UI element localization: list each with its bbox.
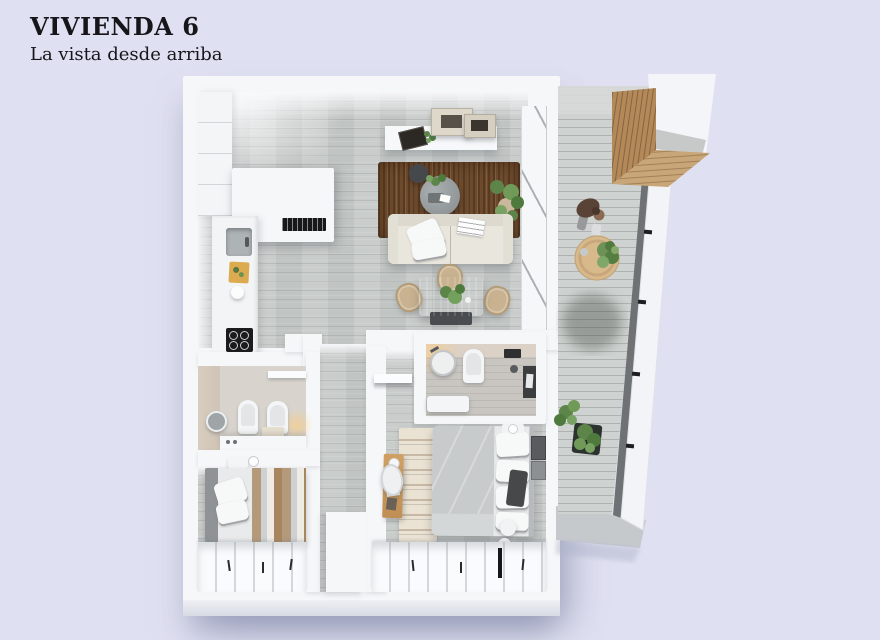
tree-shadow [562,294,622,350]
balcony-table-set [575,236,619,280]
balcony-render [0,0,880,640]
cup [580,248,588,256]
watering-can [591,223,602,235]
floor-plan-render: VIVIENDA 6 La vista desde arriba [0,0,880,640]
person-hair [592,207,600,215]
